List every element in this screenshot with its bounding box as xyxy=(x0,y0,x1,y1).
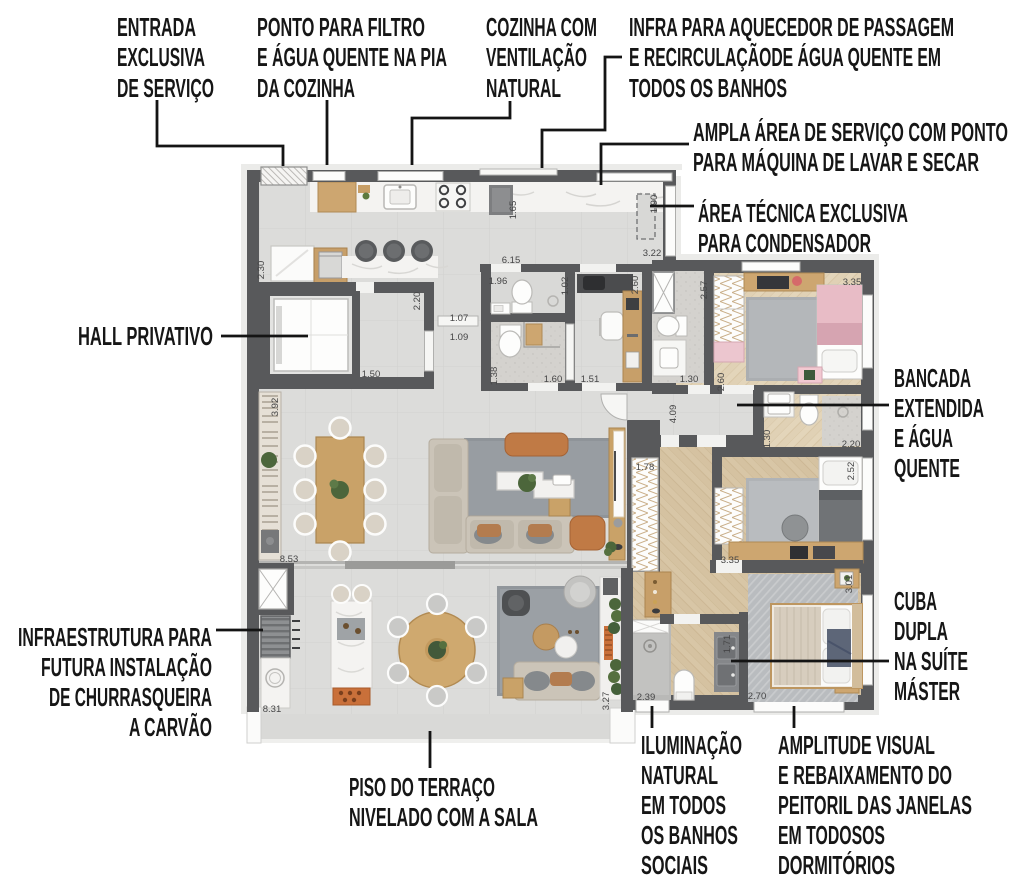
svg-text:2.20: 2.20 xyxy=(842,439,861,450)
svg-text:1.07: 1.07 xyxy=(450,313,469,324)
svg-text:EXCLUSIVA: EXCLUSIVA xyxy=(117,42,205,72)
svg-text:3.35: 3.35 xyxy=(721,555,740,566)
svg-text:PARA MÁQUINA DE LAVAR E SECAR: PARA MÁQUINA DE LAVAR E SECAR xyxy=(693,147,979,177)
svg-text:SOCIAIS: SOCIAIS xyxy=(641,850,708,880)
svg-text:DE SERVIÇO: DE SERVIÇO xyxy=(117,73,214,103)
svg-text:NA SUÍTE: NA SUÍTE xyxy=(894,646,968,676)
svg-text:1.90: 1.90 xyxy=(649,195,660,214)
svg-text:ÁREA TÉCNICA EXCLUSIVA: ÁREA TÉCNICA EXCLUSIVA xyxy=(698,198,908,228)
svg-text:DE CHURRASQUEIRA: DE CHURRASQUEIRA xyxy=(49,682,212,712)
svg-text:3.01: 3.01 xyxy=(844,575,855,594)
svg-text:AMPLA ÁREA DE SERVIÇO COM PONT: AMPLA ÁREA DE SERVIÇO COM PONTO xyxy=(693,117,1008,147)
svg-text:1.30: 1.30 xyxy=(762,430,773,449)
svg-text:3.27: 3.27 xyxy=(601,692,612,711)
svg-text:NATURAL: NATURAL xyxy=(486,73,561,103)
svg-text:1.38: 1.38 xyxy=(489,367,500,386)
svg-text:PEITORIL DAS JANELAS: PEITORIL DAS JANELAS xyxy=(778,790,972,820)
svg-text:8.53: 8.53 xyxy=(280,554,299,565)
svg-text:2.60: 2.60 xyxy=(630,276,641,295)
svg-text:DA COZINHA: DA COZINHA xyxy=(257,73,355,103)
svg-text:1.50: 1.50 xyxy=(362,369,381,380)
svg-text:1.09: 1.09 xyxy=(450,332,469,343)
svg-text:1.02: 1.02 xyxy=(560,277,571,296)
svg-text:2.57: 2.57 xyxy=(699,281,710,300)
svg-text:3.22: 3.22 xyxy=(643,248,662,259)
svg-text:2.52: 2.52 xyxy=(846,462,857,481)
svg-text:E REBAIXAMENTO DO: E REBAIXAMENTO DO xyxy=(778,760,952,790)
svg-text:NIVELADO COM A SALA: NIVELADO COM A SALA xyxy=(349,802,538,832)
svg-text:E ÁGUA: E ÁGUA xyxy=(894,423,953,453)
svg-text:8.31: 8.31 xyxy=(263,704,282,715)
svg-text:3.35: 3.35 xyxy=(843,277,862,288)
svg-text:OS BANHOS: OS BANHOS xyxy=(641,820,738,850)
svg-text:2.20: 2.20 xyxy=(412,292,423,311)
svg-text:2.70: 2.70 xyxy=(748,691,767,702)
svg-text:BANCADA: BANCADA xyxy=(894,363,971,393)
svg-text:6.15: 6.15 xyxy=(502,255,521,266)
svg-text:QUENTE: QUENTE xyxy=(894,453,960,483)
svg-text:PONTO PARA FILTRO: PONTO PARA FILTRO xyxy=(257,12,425,42)
svg-text:INFRA PARA AQUECEDOR DE PASSAG: INFRA PARA AQUECEDOR DE PASSAGEM xyxy=(629,12,954,42)
svg-text:1.96: 1.96 xyxy=(489,276,508,287)
svg-text:EM TODOSOS: EM TODOSOS xyxy=(778,820,885,850)
svg-text:ENTRADA: ENTRADA xyxy=(117,12,196,42)
svg-text:E ÁGUA QUENTE NA PIA: E ÁGUA QUENTE NA PIA xyxy=(257,42,447,72)
svg-text:1.78: 1.78 xyxy=(636,462,655,473)
svg-text:CUBA: CUBA xyxy=(894,586,937,616)
svg-text:1.30: 1.30 xyxy=(680,374,699,385)
svg-text:2.30: 2.30 xyxy=(256,261,267,280)
svg-text:A CARVÃO: A CARVÃO xyxy=(129,712,212,742)
svg-text:2.60: 2.60 xyxy=(716,373,727,392)
svg-text:COZINHA COM: COZINHA COM xyxy=(486,12,597,42)
svg-text:DORMITÓRIOS: DORMITÓRIOS xyxy=(778,850,895,880)
svg-text:4.09: 4.09 xyxy=(668,405,679,424)
svg-text:INFRAESTRUTURA PARA: INFRAESTRUTURA PARA xyxy=(18,622,212,652)
svg-text:MÁSTER: MÁSTER xyxy=(894,676,960,706)
svg-text:1.65: 1.65 xyxy=(508,201,519,220)
svg-text:HALL PRIVATIVO: HALL PRIVATIVO xyxy=(78,321,213,351)
svg-text:1.60: 1.60 xyxy=(544,374,563,385)
svg-text:ILUMINAÇÃO: ILUMINAÇÃO xyxy=(641,730,742,760)
svg-text:1.71: 1.71 xyxy=(722,635,733,654)
svg-text:PARA CONDENSADOR: PARA CONDENSADOR xyxy=(698,228,871,258)
svg-text:EM TODOS: EM TODOS xyxy=(641,790,726,820)
svg-text:PISO DO TERRAÇO: PISO DO TERRAÇO xyxy=(349,772,495,802)
svg-text:NATURAL: NATURAL xyxy=(641,760,718,790)
svg-text:1.51: 1.51 xyxy=(581,374,600,385)
svg-text:EXTENDIDA: EXTENDIDA xyxy=(894,393,984,423)
svg-text:TODOS OS BANHOS: TODOS OS BANHOS xyxy=(629,73,787,103)
svg-text:VENTILAÇÃO: VENTILAÇÃO xyxy=(486,42,587,72)
svg-text:FUTURA INSTALAÇÃO: FUTURA INSTALAÇÃO xyxy=(41,652,212,682)
svg-text:E RECIRCULAÇÃODE ÁGUA QUENTE E: E RECIRCULAÇÃODE ÁGUA QUENTE EM xyxy=(629,42,941,72)
svg-text:2.39: 2.39 xyxy=(637,692,656,703)
svg-text:AMPLITUDE VISUAL: AMPLITUDE VISUAL xyxy=(778,730,935,760)
svg-text:3.92: 3.92 xyxy=(270,398,281,417)
svg-text:DUPLA: DUPLA xyxy=(894,616,948,646)
